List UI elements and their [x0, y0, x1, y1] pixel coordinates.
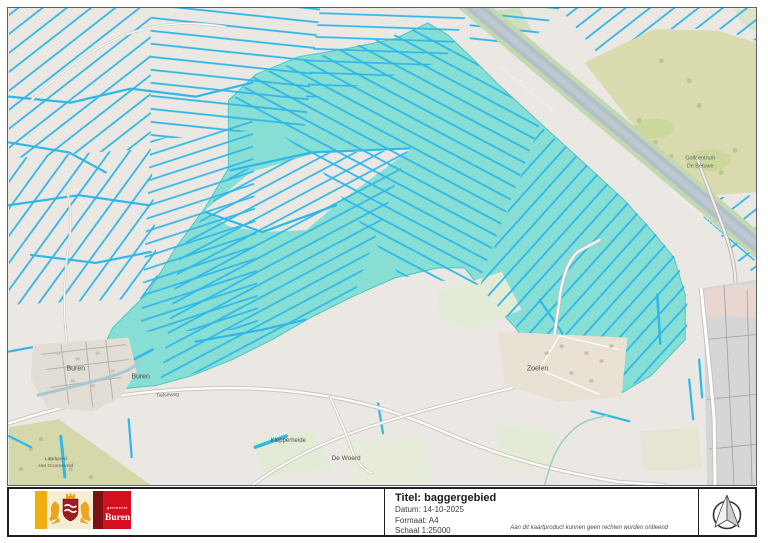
- map-info-section: Titel: baggergebied Datum: 14-10-2025 Fo…: [385, 489, 698, 535]
- disclaimer-text: Aan dit kaartproduct kunnen geen rechten…: [510, 525, 668, 531]
- label-zoelen: Zoelen: [527, 365, 548, 372]
- map-title: Titel: baggergebied: [395, 492, 698, 505]
- buren-coat-of-arms-icon: gemeente Buren: [35, 491, 131, 529]
- label-buren: Buren: [67, 365, 86, 372]
- label-golfcentrum-1: Golfcentrum: [685, 155, 715, 161]
- north-arrow-section: [698, 489, 755, 535]
- label-de-woerd: De Woerd: [332, 455, 361, 462]
- label-golfcentrum-2: De Betuwe: [687, 163, 714, 169]
- logo-gemeente-text: gemeente: [107, 505, 128, 510]
- gemeente-buren-logo: gemeente Buren: [35, 491, 131, 534]
- label-landgoed-1: Landgoed: [45, 456, 67, 462]
- title-block: gemeente Buren Titel: baggergebied Datum…: [7, 487, 757, 537]
- map-sheet: Buren Buren Tielseweg Klepperheide De Wo…: [0, 0, 768, 543]
- map-svg: Buren Buren Tielseweg Klepperheide De Wo…: [8, 8, 756, 485]
- logo-section: gemeente Buren: [9, 489, 385, 535]
- map-canvas: Buren Buren Tielseweg Klepperheide De Wo…: [7, 7, 757, 486]
- label-buren-2: Buren: [131, 373, 150, 380]
- logo-buren-text: Buren: [105, 513, 131, 523]
- label-klepperheide: Klepperheide: [271, 438, 307, 444]
- label-landgoed-2: Het Groeneveld: [38, 463, 73, 469]
- label-tielseweg: Tielseweg: [156, 392, 180, 399]
- map-date: Datum: 14-10-2025: [395, 505, 698, 516]
- industrial-area: [701, 280, 756, 485]
- north-arrow-icon: [705, 490, 749, 534]
